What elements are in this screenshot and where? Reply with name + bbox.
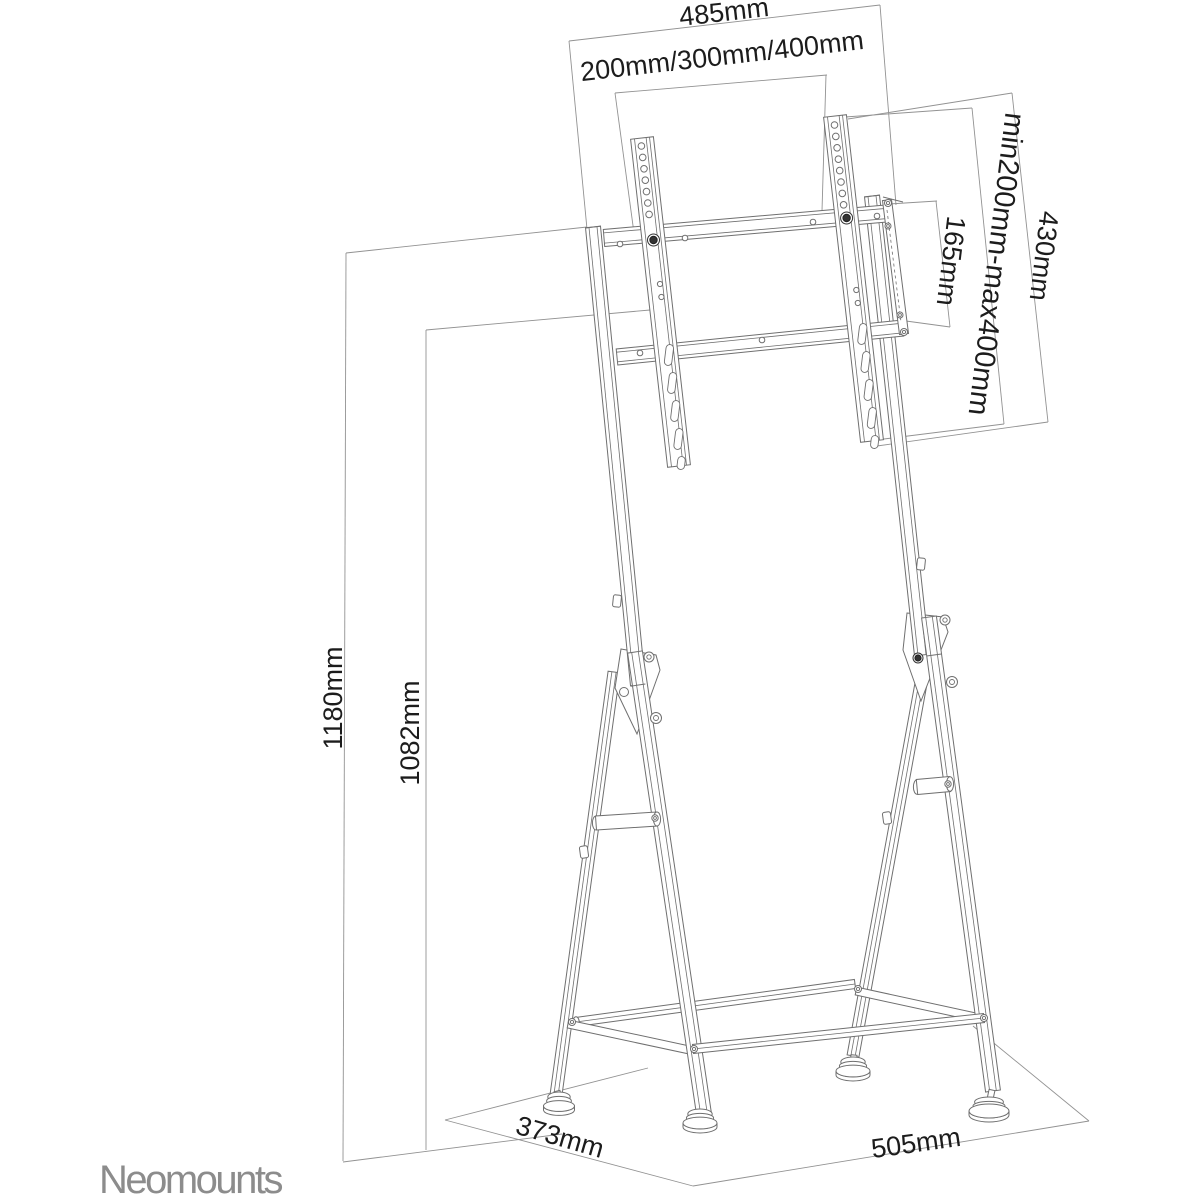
svg-text:1082mm: 1082mm: [395, 680, 425, 785]
svg-text:Neomounts: Neomounts: [99, 1158, 283, 1200]
svg-text:1180mm: 1180mm: [318, 646, 348, 749]
